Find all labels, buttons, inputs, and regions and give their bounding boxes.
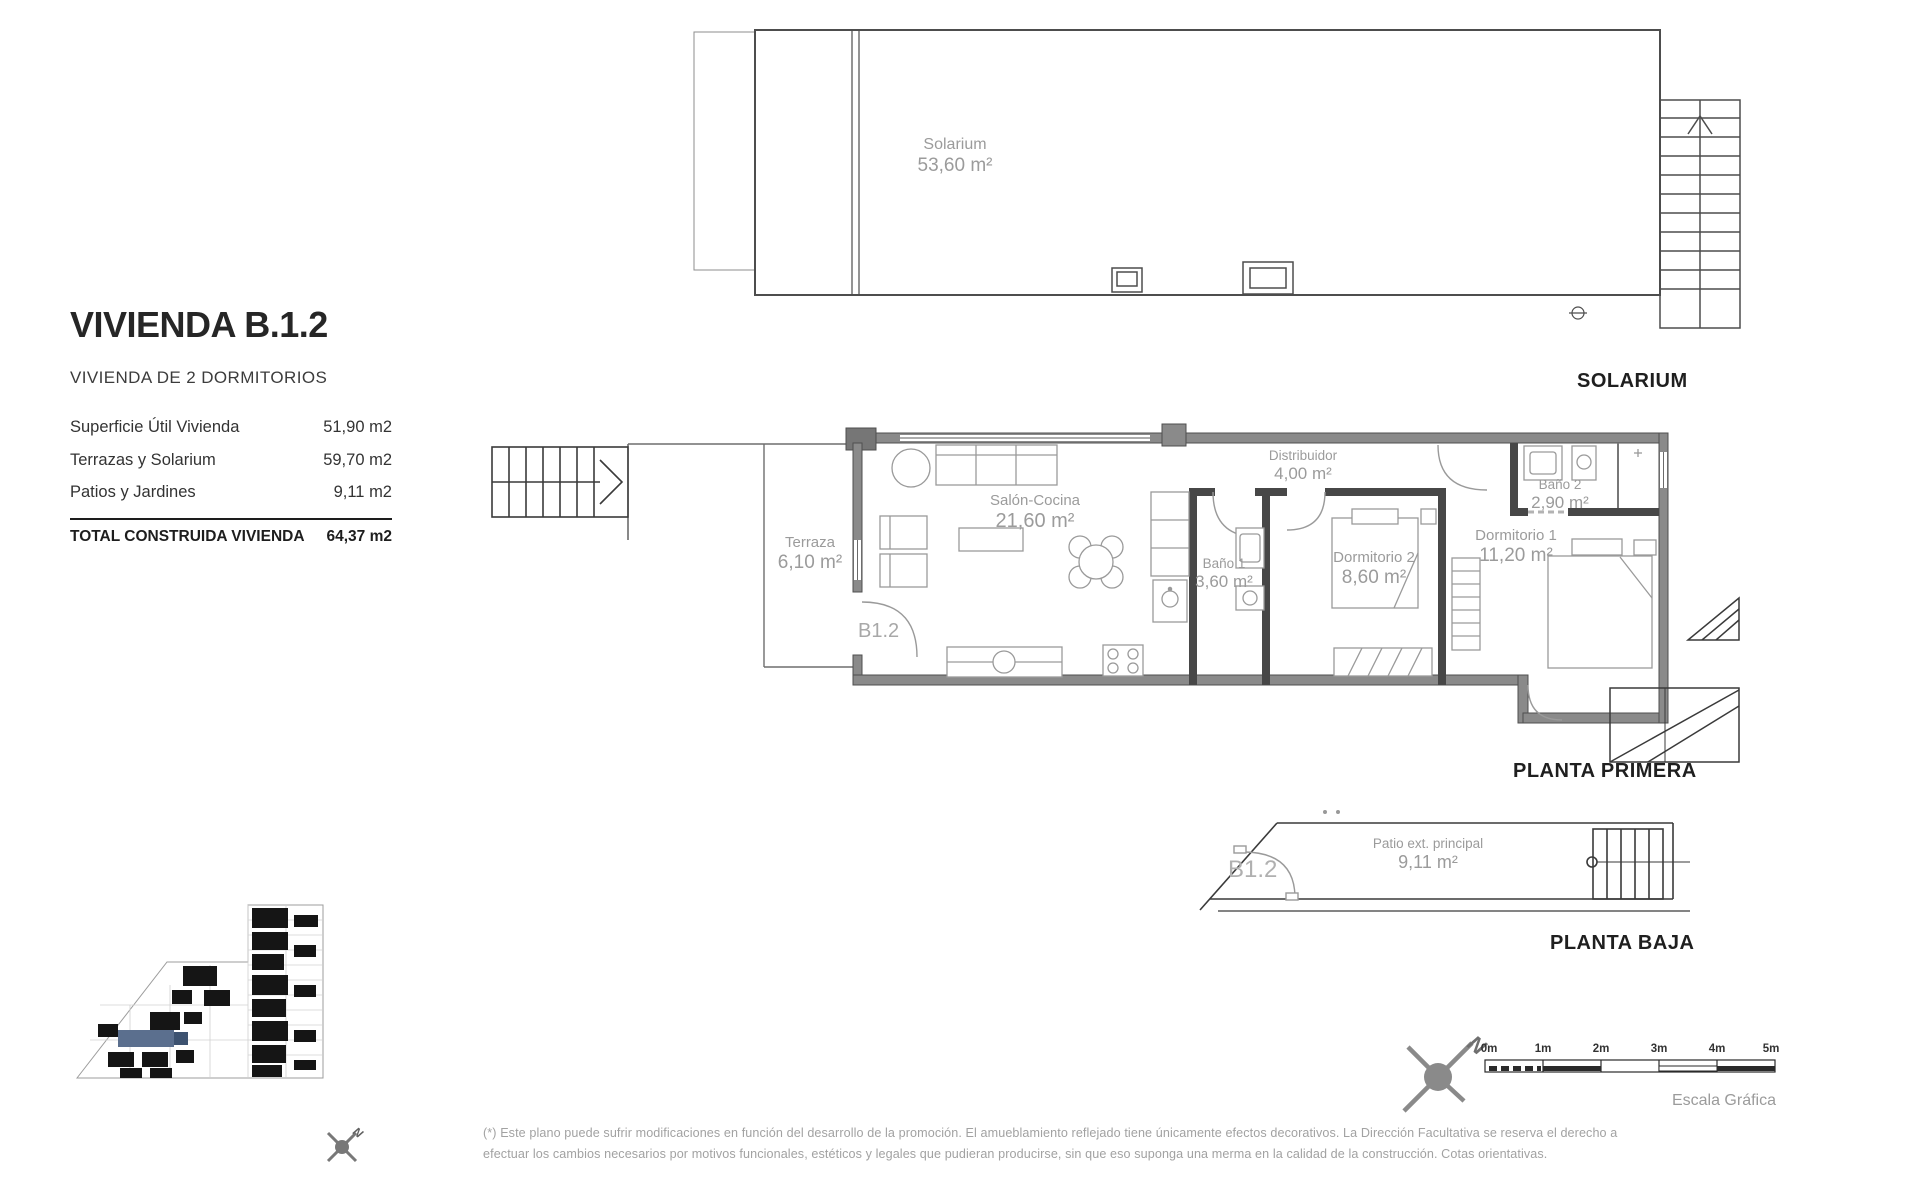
sofa (936, 445, 1057, 485)
page-subtitle: VIVIENDA DE 2 DORMITORIOS (70, 368, 327, 388)
nightstand (1634, 540, 1656, 555)
wardrobe (1452, 558, 1480, 650)
highlighted-unit-core (174, 1032, 188, 1045)
unit-label-ground-floor: B1.2 (1228, 856, 1277, 884)
room-label-dormitorio2: Dormitorio 2 8,60 m² (1333, 549, 1415, 589)
solarium-plan-drawing (694, 30, 1740, 328)
kitchen-hob (1103, 645, 1143, 676)
kitchen-counter (1151, 492, 1189, 576)
north-arrow: N (1404, 1030, 1492, 1111)
toilet (1572, 446, 1596, 480)
room-label-solarium: Solarium 53,60 m² (918, 136, 993, 177)
scale-tick: 1m (1535, 1043, 1552, 1055)
shower-drain (1634, 449, 1642, 457)
floorplan-sheet: N 0m 1m 2m 3m 4m 5m (0, 0, 1920, 1200)
room-label-terraza: Terraza 6,10 m² (778, 534, 842, 574)
kitchen-sink (1153, 580, 1187, 622)
scale-caption: Escala Gráfica (1600, 1092, 1776, 1110)
ground-floor-stairs (1587, 829, 1690, 899)
caption-planta-primera: PLANTA PRIMERA (1513, 760, 1697, 783)
bedroom2-door-arc (1287, 492, 1325, 530)
scale-tick: 0m (1481, 1043, 1498, 1055)
area-row-label: Patios y Jardines (70, 483, 196, 502)
washbasin (1524, 446, 1562, 480)
bedroom1-door-arc (1438, 445, 1487, 490)
area-row-label: Terrazas y Solarium (70, 451, 216, 470)
area-row: Superficie Útil Vivienda 51,90 m2 (70, 418, 392, 437)
roof-vent-1 (1112, 268, 1142, 292)
room-label-patio: Patio ext. principal 9,11 m² (1373, 836, 1483, 873)
entry-stairs (492, 444, 628, 540)
area-row-value: 59,70 m2 (323, 451, 392, 470)
first-floor-plan-drawing (492, 424, 1739, 762)
area-row-label: Superficie Útil Vivienda (70, 418, 239, 437)
disclaimer-line-2: efectuar los cambios necesarios por moti… (483, 1147, 1547, 1161)
dining-set (1069, 536, 1123, 588)
bedroom2-furniture (1332, 509, 1436, 676)
double-bed (1548, 539, 1652, 668)
side-table (892, 449, 930, 487)
scale-bar: 0m 1m 2m 3m 4m 5m (1481, 1043, 1780, 1072)
area-row-value: 51,90 m2 (323, 418, 392, 437)
room-label-salon-cocina: Salón-Cocina 21,60 m² (990, 492, 1080, 533)
scale-tick-labels: 0m 1m 2m 3m 4m 5m (1481, 1043, 1780, 1055)
area-row: Terrazas y Solarium 59,70 m2 (70, 451, 392, 470)
disclaimer-line-1: (*) Este plano puede sufrir modificacion… (483, 1126, 1617, 1140)
area-row: Patios y Jardines 9,11 m2 (70, 483, 392, 502)
scale-tick: 4m (1709, 1043, 1726, 1055)
page-title: VIVIENDA B.1.2 (70, 304, 328, 346)
caption-planta-baja: PLANTA BAJA (1550, 932, 1694, 955)
area-row-value: 9,11 m2 (334, 483, 392, 502)
north-arrow-small: N (328, 1124, 366, 1161)
drain-symbol (1569, 307, 1587, 319)
scale-tick: 3m (1651, 1043, 1668, 1055)
caption-solarium: SOLARIUM (1577, 370, 1688, 393)
area-total-value: 64,37 m2 (327, 528, 393, 546)
area-total-row: TOTAL CONSTRUIDA VIVIENDA 64,37 m2 (70, 528, 392, 546)
site-key-plan (77, 905, 323, 1078)
solarium-stairs (1660, 100, 1740, 328)
wardrobe (1334, 648, 1432, 676)
area-total-label: TOTAL CONSTRUIDA VIVIENDA (70, 528, 305, 546)
unit-label-first-floor: B1.2 (858, 620, 899, 643)
roof-vent-2 (1243, 262, 1293, 294)
room-label-bano2: Baño 2 2,90 m² (1531, 477, 1589, 513)
bath2-fixtures (1524, 446, 1642, 480)
room-label-dormitorio1: Dormitorio 1 11,20 m² (1475, 527, 1557, 567)
room-label-distribuidor: Distribuidor 4,00 m² (1269, 448, 1337, 484)
divider (70, 518, 392, 520)
scale-tick: 2m (1593, 1043, 1610, 1055)
tv-sideboard (947, 647, 1062, 677)
site-units (98, 908, 318, 1078)
armchair (880, 516, 927, 549)
scale-tick: 5m (1763, 1043, 1780, 1055)
armchair (880, 554, 927, 587)
plan-linework: N 0m 1m 2m 3m 4m 5m (0, 0, 1920, 1200)
nightstand (1421, 509, 1436, 524)
room-label-bano1: Baño 1 3,60 m² (1195, 556, 1253, 592)
highlighted-unit (118, 1030, 174, 1047)
